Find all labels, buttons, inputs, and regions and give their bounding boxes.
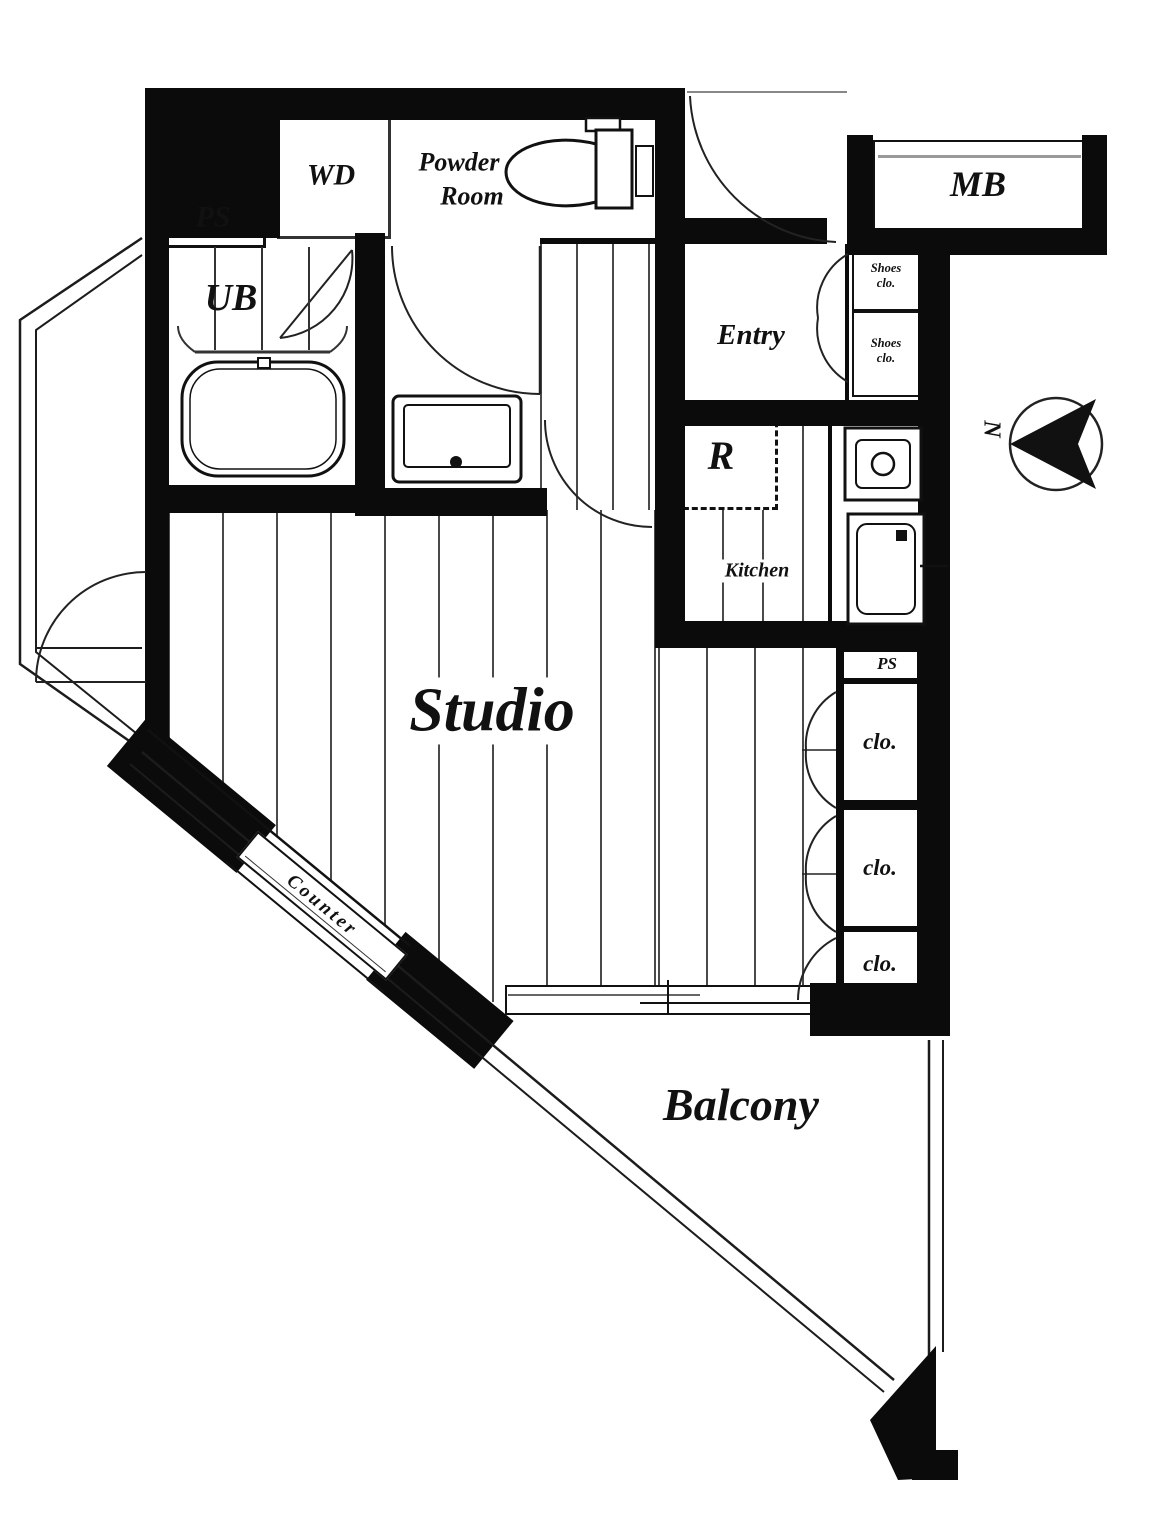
balcony-sliding-door [505, 985, 817, 1015]
powder-room-label-line1: Powder [419, 148, 500, 175]
shoes-closet-door-arc-1 [817, 254, 848, 318]
wall-ub-powder [355, 233, 385, 498]
shoes-closet-door-arc-2 [817, 318, 848, 382]
meter-box-label: MB [950, 166, 1006, 204]
toilet-icon [506, 118, 653, 208]
wall-below-mb [847, 228, 1107, 255]
wall-kitchen-bottom [655, 621, 922, 648]
washer-dryer-label: WD [307, 159, 355, 191]
bay-door-arc [36, 572, 146, 682]
powder-door-arc [392, 246, 540, 394]
shoes-closet-top-label: Shoes clo. [871, 261, 902, 291]
balcony-label: Balcony [663, 1081, 819, 1129]
wall-right [918, 228, 950, 1036]
north-label: N [978, 420, 1003, 437]
shoes-closet-bottom-label: Shoes clo. [871, 336, 902, 366]
unit-bath-label: UB [205, 279, 258, 319]
bay-window-outline [20, 238, 142, 750]
meter-box-door-line [878, 155, 1081, 158]
closet-3-label: clo. [863, 952, 897, 976]
balcony-corner-foot [912, 1450, 958, 1480]
closet-1-label: clo. [863, 730, 897, 754]
balcony-corner-block [870, 1346, 936, 1480]
studio-flooring [168, 510, 658, 1002]
wall-entry-kitchen [655, 400, 920, 426]
wall-kitchen-counter-divider [828, 424, 832, 623]
shoes-closet-top-line1: Shoes [871, 261, 902, 275]
wall-left [145, 88, 169, 750]
wall-porch-entry [655, 218, 827, 244]
compass-icon [1010, 398, 1102, 490]
washbasin-icon [393, 396, 521, 482]
wall-ub-bottom [145, 485, 358, 513]
hall-flooring [540, 243, 658, 510]
wall-toilet-nook-line [540, 238, 658, 244]
shoes-closet-bottom-line1: Shoes [871, 336, 902, 350]
shoes-closet-top-line2: clo. [877, 276, 895, 290]
closet-2-label: clo. [863, 856, 897, 880]
wall-balcony-top [810, 983, 950, 1036]
ub-room [168, 245, 358, 488]
stove-icon [845, 428, 921, 500]
studio-label: Studio [399, 677, 584, 744]
kitchen-label: Kitchen [715, 560, 799, 583]
ps-small-label: PS [877, 655, 897, 673]
wall-hall-entry [655, 88, 685, 648]
floor-plan: Counter PS WD Powder Room UB MB Entry Sh… [0, 0, 1168, 1520]
studio-east-flooring [658, 648, 838, 1002]
entry-label: Entry [717, 320, 785, 350]
wall-shoebox-divider [845, 244, 849, 402]
wall-powder-bottom [355, 488, 547, 516]
shoes-closet-bottom-line2: clo. [877, 351, 895, 365]
fridge-label: R [708, 435, 735, 477]
ps-top-label: PS [195, 201, 230, 233]
powder-room-label-line2: Room [440, 182, 504, 209]
